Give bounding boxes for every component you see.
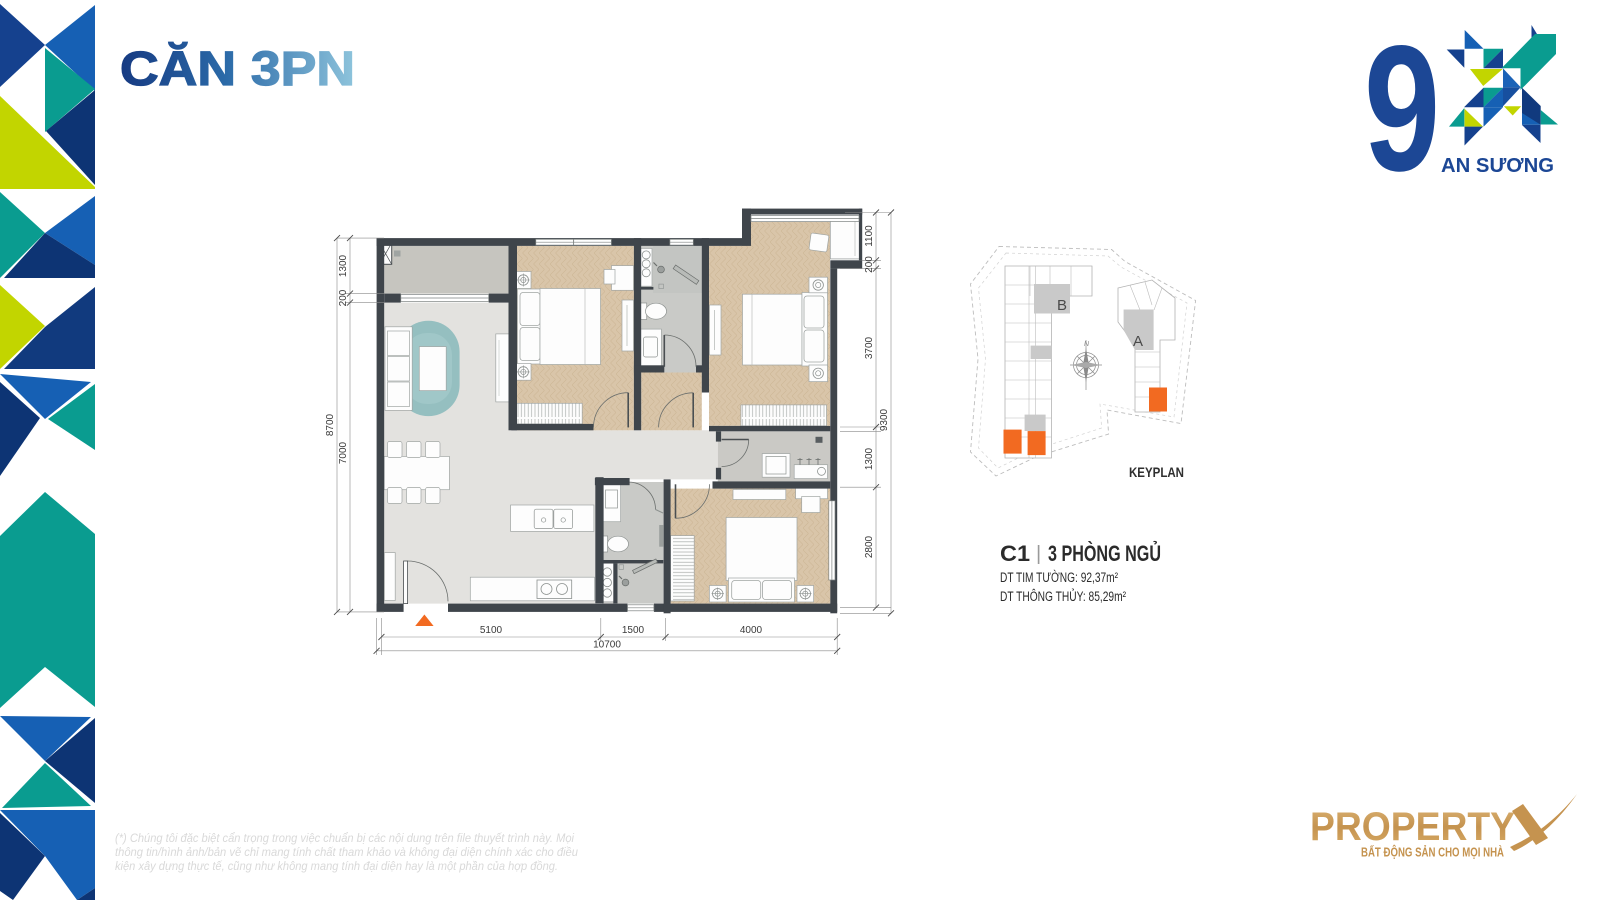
svg-text:1300: 1300 <box>338 254 349 277</box>
svg-text:DT THÔNG THỦY: 85,29m²: DT THÔNG THỦY: 85,29m² <box>1000 589 1126 604</box>
svg-text:9300: 9300 <box>879 408 890 431</box>
svg-text:thông tin/hình ảnh/bản vẽ chỉ: thông tin/hình ảnh/bản vẽ chỉ mang tính … <box>115 845 578 859</box>
svg-text:DT TIM TƯỜNG: 92,37m²: DT TIM TƯỜNG: 92,37m² <box>1000 570 1118 585</box>
svg-text:KEYPLAN: KEYPLAN <box>1129 464 1184 480</box>
svg-text:10700: 10700 <box>593 640 621 651</box>
svg-text:1300: 1300 <box>864 447 875 470</box>
svg-text:(*) Chúng tôi đặc biệt cẩn trọ: (*) Chúng tôi đặc biệt cẩn trọng trong v… <box>115 831 574 845</box>
svg-text:2800: 2800 <box>864 535 875 558</box>
svg-text:5100: 5100 <box>480 625 503 636</box>
svg-text:7000: 7000 <box>338 441 349 464</box>
svg-text:N: N <box>1084 341 1090 348</box>
svg-text:AN SƯƠNG: AN SƯƠNG <box>1441 154 1554 177</box>
svg-text:A: A <box>1133 333 1143 350</box>
svg-text:8700: 8700 <box>325 413 336 436</box>
svg-text:4000: 4000 <box>740 625 763 636</box>
svg-text:B: B <box>1057 297 1067 314</box>
svg-text:PROPERTY: PROPERTY <box>1310 805 1515 849</box>
svg-text:3 PHÒNG NGỦ: 3 PHÒNG NGỦ <box>1048 541 1161 566</box>
svg-text:9: 9 <box>1364 8 1440 208</box>
svg-text:1100: 1100 <box>864 225 875 247</box>
svg-text:3700: 3700 <box>864 336 875 359</box>
svg-text:BẤT ĐỘNG SẢN CHO MỌI NHÀ: BẤT ĐỘNG SẢN CHO MỌI NHÀ <box>1361 845 1504 860</box>
svg-text:kiện xây dựng thực tế, cũng nh: kiện xây dựng thực tế, cũng như không ma… <box>115 859 558 873</box>
svg-text:|: | <box>1036 543 1041 565</box>
svg-text:CĂN 3PN: CĂN 3PN <box>120 42 355 96</box>
svg-text:200: 200 <box>338 289 349 306</box>
svg-text:200: 200 <box>864 256 875 273</box>
svg-text:C1: C1 <box>1000 541 1030 566</box>
svg-text:1500: 1500 <box>622 625 645 636</box>
